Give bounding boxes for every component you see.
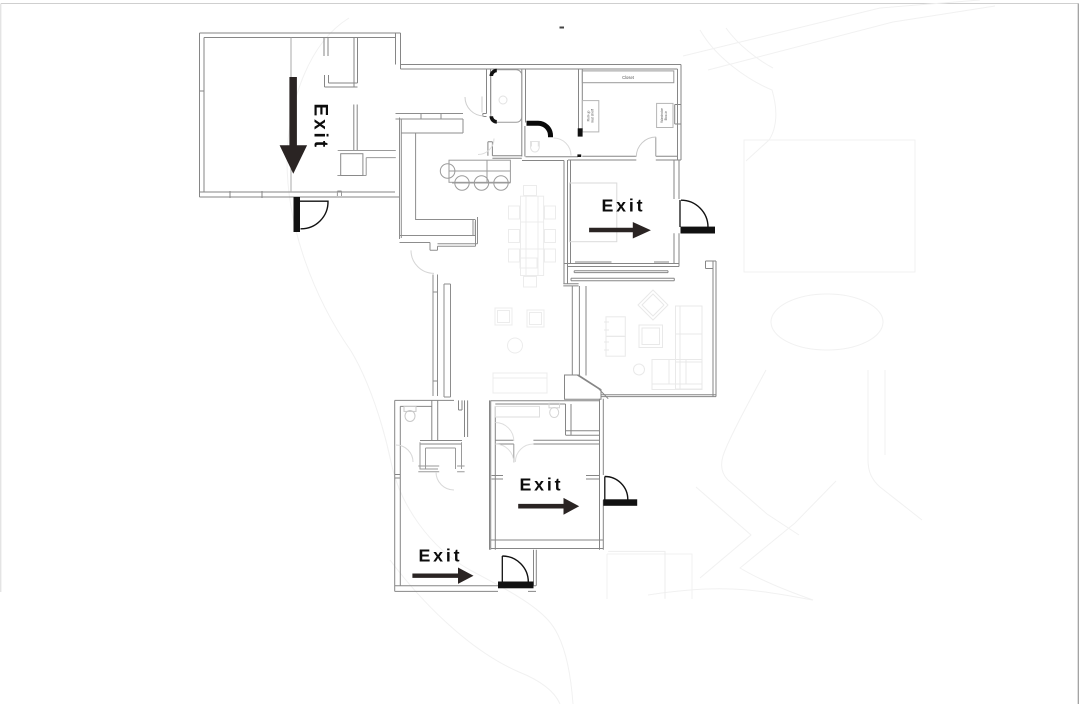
svg-text:mat shelf: mat shelf bbox=[591, 109, 595, 123]
svg-text:Exit: Exit bbox=[310, 104, 331, 150]
svg-text:Exit: Exit bbox=[520, 474, 564, 494]
svg-text:Box-in: Box-in bbox=[664, 111, 668, 121]
svg-text:Exit: Exit bbox=[602, 196, 646, 216]
svg-text:Closet: Closet bbox=[622, 75, 635, 80]
svg-text:Exit: Exit bbox=[419, 546, 463, 566]
